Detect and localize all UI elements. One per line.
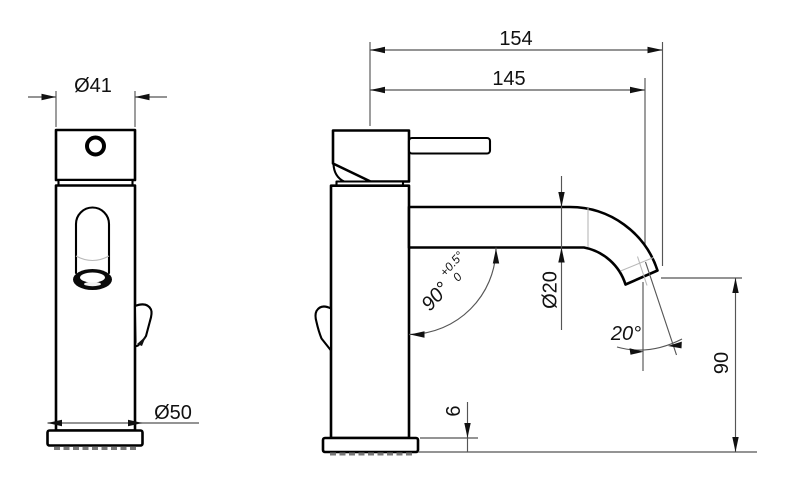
arrowhead (135, 94, 150, 100)
side-view: 154 145 (316, 28, 758, 454)
front-aerator-highlight (84, 282, 101, 286)
dim-label-total-reach: 154 (499, 28, 532, 50)
dim-label-angle: 90° (417, 278, 454, 315)
side-dim-spout-diameter: Ø20 (540, 176, 565, 330)
arrowhead (630, 87, 645, 93)
side-body (331, 186, 409, 438)
arrowhead (370, 47, 385, 53)
arrowhead (42, 94, 57, 100)
side-lever-knob (316, 307, 332, 351)
arrowhead (558, 192, 564, 207)
dim-label-outlet-angle: 20° (610, 323, 641, 345)
arrowhead (732, 278, 738, 293)
arrowhead (732, 437, 738, 452)
arrowhead (410, 331, 425, 337)
angled-reference-line (646, 262, 677, 355)
arrowhead (370, 87, 385, 93)
front-aerator-inner (80, 273, 105, 283)
dim-label-top-diameter: Ø41 (74, 75, 112, 97)
dim-label-spout-reach: 145 (492, 68, 525, 90)
arrowhead (464, 423, 470, 438)
arrowhead (558, 248, 564, 263)
drawing-canvas: Ø41 Ø50 (0, 0, 800, 488)
dim-label-base-diameter: Ø50 (154, 402, 192, 424)
side-base-plate (323, 438, 418, 452)
arrowhead (630, 348, 644, 355)
side-dim-spout-height: 90 (661, 278, 742, 452)
side-dim-body-spout-angle: 90° +0.5° 0 (409, 248, 499, 338)
dim-label-spout-height: 90 (711, 352, 733, 374)
front-dim-top-diameter: Ø41 (28, 75, 167, 127)
side-dim-base-plate-height: 6 (420, 402, 478, 452)
side-lever-arm (409, 138, 490, 154)
front-body (56, 186, 135, 431)
angle-label-group: 90° +0.5° 0 (413, 249, 477, 316)
dim-label-angle-tol-lower: 0 (450, 270, 465, 285)
side-handle-head (333, 131, 409, 182)
arrowhead (648, 47, 663, 53)
arrowhead (493, 249, 499, 264)
dim-label-base-plate-height: 6 (443, 405, 465, 416)
dim-label-spout-diameter: Ø20 (540, 271, 562, 309)
technical-drawing: Ø41 Ø50 (0, 0, 800, 488)
front-view: Ø41 Ø50 (28, 75, 199, 449)
front-base-plate (48, 431, 143, 446)
